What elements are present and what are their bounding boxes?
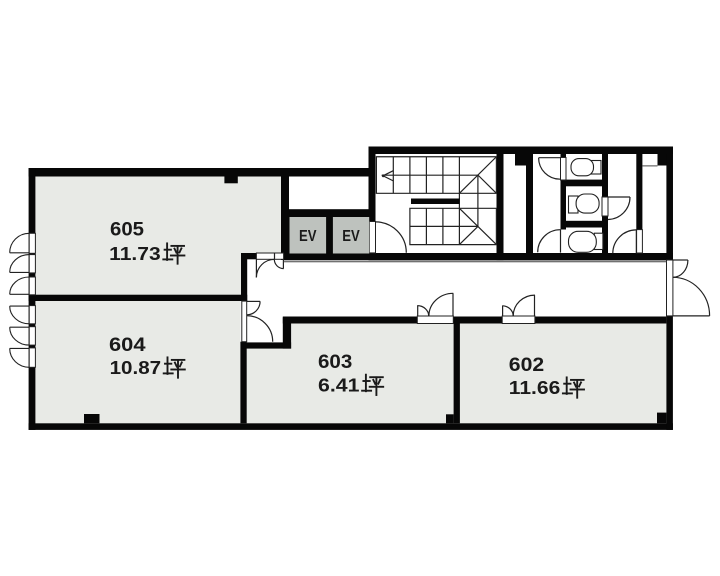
- svg-text:603: 603: [318, 352, 352, 373]
- svg-text:10.87: 10.87: [110, 357, 162, 378]
- svg-text:6.41: 6.41: [318, 374, 360, 395]
- svg-text:11.73: 11.73: [109, 243, 161, 264]
- svg-text:605: 605: [110, 220, 144, 241]
- svg-text:EV: EV: [342, 228, 360, 245]
- svg-text:604: 604: [109, 335, 146, 356]
- svg-text:602: 602: [509, 355, 544, 376]
- svg-text:EV: EV: [299, 228, 317, 245]
- svg-text:11.66: 11.66: [509, 377, 561, 398]
